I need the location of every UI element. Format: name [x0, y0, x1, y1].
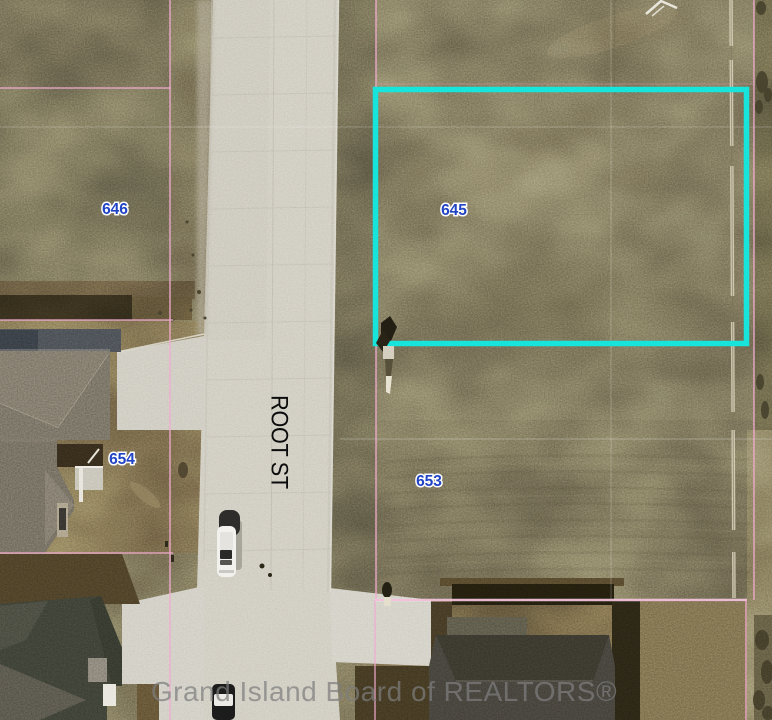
- svg-text:Grand Island Board of REALTORS: Grand Island Board of REALTORS®: [151, 676, 617, 707]
- svg-text:ROOT ST: ROOT ST: [266, 395, 293, 489]
- svg-text:645: 645: [441, 202, 467, 219]
- svg-text:646: 646: [102, 201, 128, 218]
- svg-text:653: 653: [416, 473, 442, 490]
- svg-text:654: 654: [109, 451, 135, 468]
